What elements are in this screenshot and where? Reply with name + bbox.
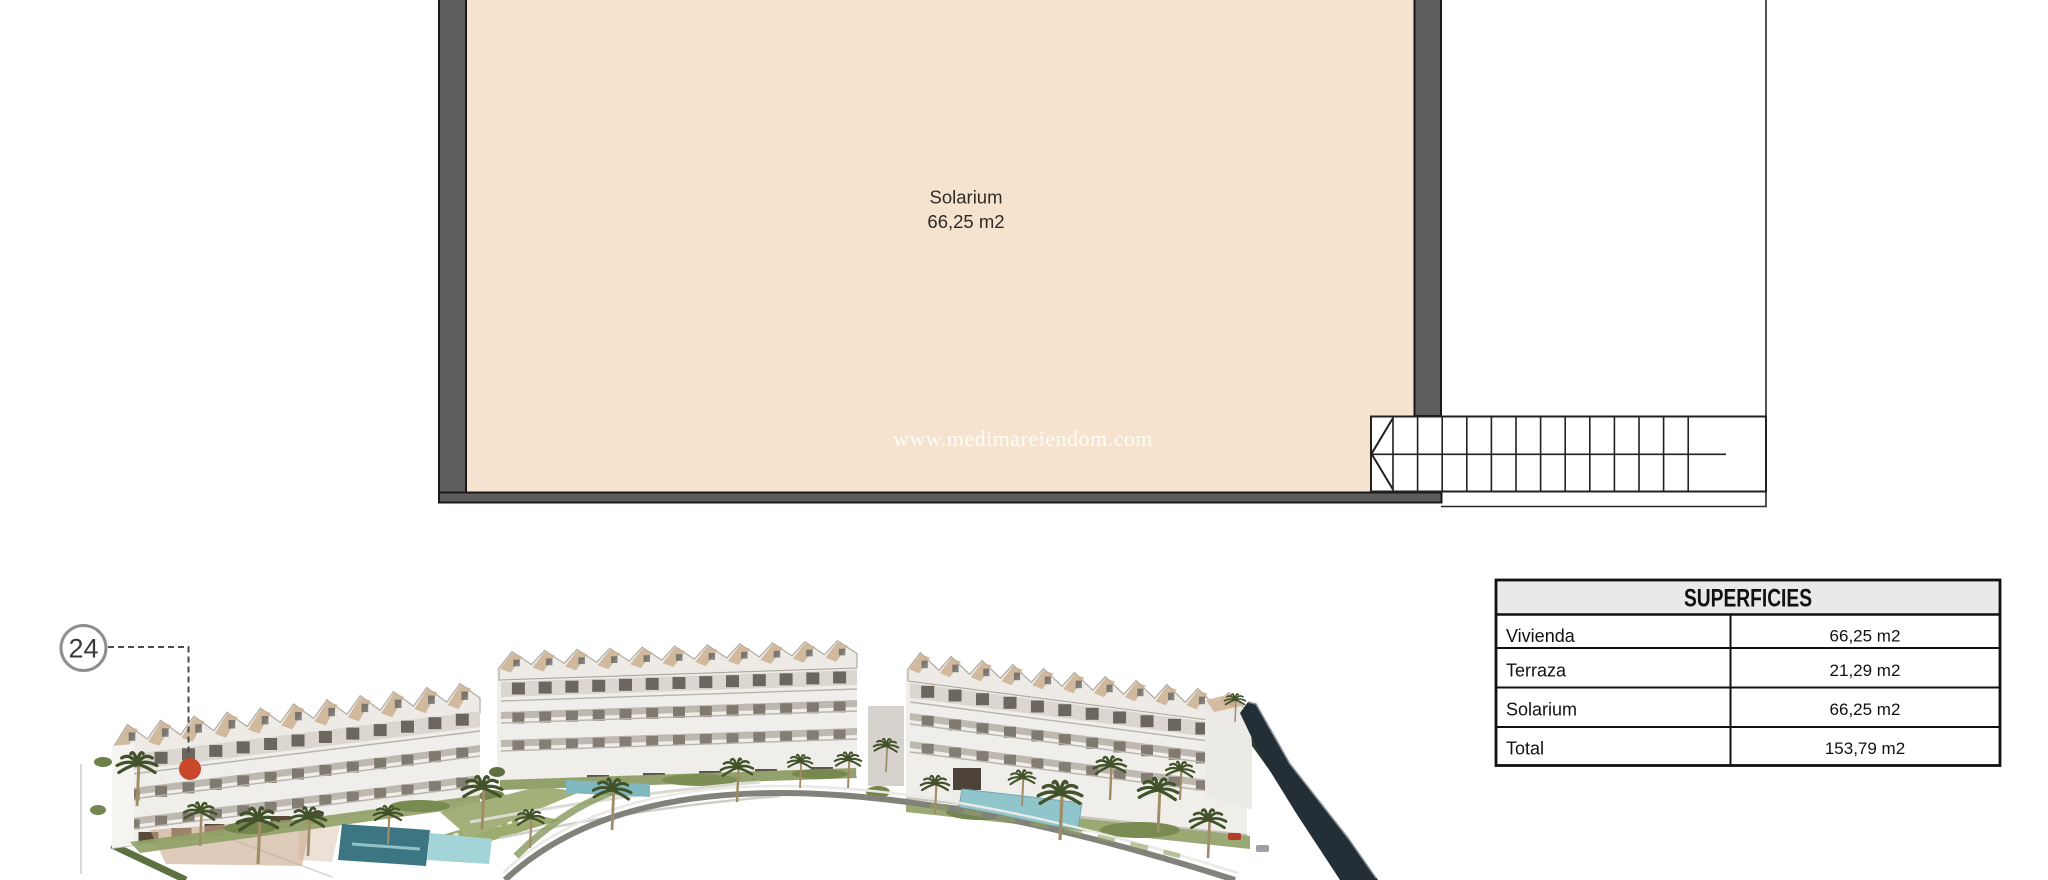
svg-text:Vivienda: Vivienda (1506, 626, 1576, 646)
svg-text:66,25 m2: 66,25 m2 (1830, 627, 1901, 646)
svg-text:www.medimareiendom.com: www.medimareiendom.com (893, 426, 1153, 451)
svg-text:24: 24 (68, 634, 98, 664)
svg-text:153,79 m2: 153,79 m2 (1825, 739, 1905, 758)
svg-text:66,25 m2: 66,25 m2 (927, 211, 1004, 232)
svg-text:Terraza: Terraza (1506, 661, 1567, 681)
svg-text:66,25 m2: 66,25 m2 (1830, 700, 1901, 719)
svg-text:Solarium: Solarium (1506, 700, 1577, 720)
svg-text:Total: Total (1506, 739, 1544, 759)
svg-text:21,29 m2: 21,29 m2 (1830, 661, 1901, 680)
svg-text:Solarium: Solarium (930, 187, 1003, 208)
svg-text:SUPERFICIES: SUPERFICIES (1684, 585, 1812, 613)
